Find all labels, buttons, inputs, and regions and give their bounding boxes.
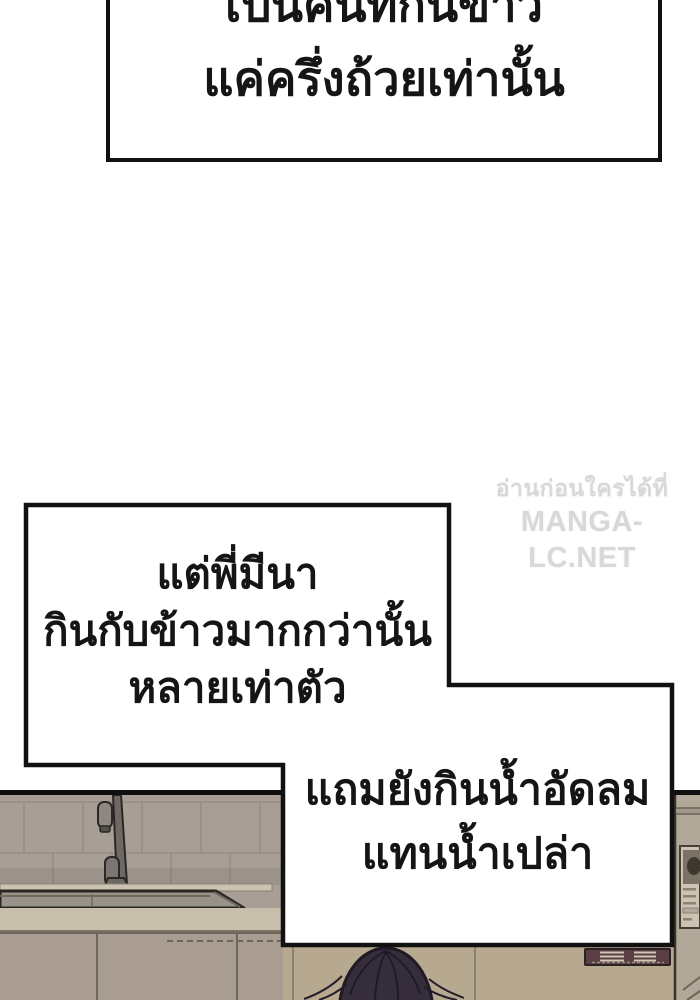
comic-page: เป็นคนที่กินข้าว แค่ครึ่งถ้วยเท่านั้น แต… bbox=[0, 0, 700, 1000]
speech-line: กินกับข้าวมากกว่านั้น bbox=[26, 602, 449, 659]
speech-line: หลายเท่าตัว bbox=[26, 659, 449, 716]
counter-front bbox=[0, 908, 282, 933]
watermark-thai-text: อ่านก่อนใครได้ที่ bbox=[470, 472, 694, 504]
sink-basin bbox=[0, 891, 244, 908]
faucet-spray-head bbox=[98, 802, 112, 828]
fridge-poster bbox=[680, 846, 700, 928]
speech-line: เป็นคนที่กินข้าว bbox=[110, 0, 658, 42]
speech-line: แทนน้ำเปล่า bbox=[283, 822, 672, 886]
watermark-site-name: MANGA-LC.NET bbox=[470, 504, 694, 576]
faucet-spray-tip bbox=[100, 826, 110, 832]
speech-bubble-bottom-text: แถมยังกินน้ำอัดลม แทนน้ำเปล่า bbox=[283, 758, 672, 886]
speech-line: แค่ครึ่งถ้วยเท่านั้น bbox=[110, 42, 658, 116]
watermark: อ่านก่อนใครได้ที่ MANGA-LC.NET bbox=[470, 472, 694, 576]
speech-line: แต่พี่มีนา bbox=[26, 545, 449, 602]
speech-line: แถมยังกินน้ำอัดลม bbox=[283, 758, 672, 822]
speech-bubble-top: เป็นคนที่กินข้าว แค่ครึ่งถ้วยเท่านั้น bbox=[106, 0, 662, 162]
speech-bubble-middle-text: แต่พี่มีนา กินกับข้าวมากกว่านั้น หลายเท่… bbox=[26, 545, 449, 716]
fridge-trim bbox=[676, 808, 700, 814]
fridge bbox=[674, 794, 700, 1000]
cabinets bbox=[0, 933, 283, 1000]
vent-grille bbox=[585, 949, 670, 965]
speech-bubble-top-text: เป็นคนที่กินข้าว แค่ครึ่งถ้วยเท่านั้น bbox=[110, 0, 658, 116]
